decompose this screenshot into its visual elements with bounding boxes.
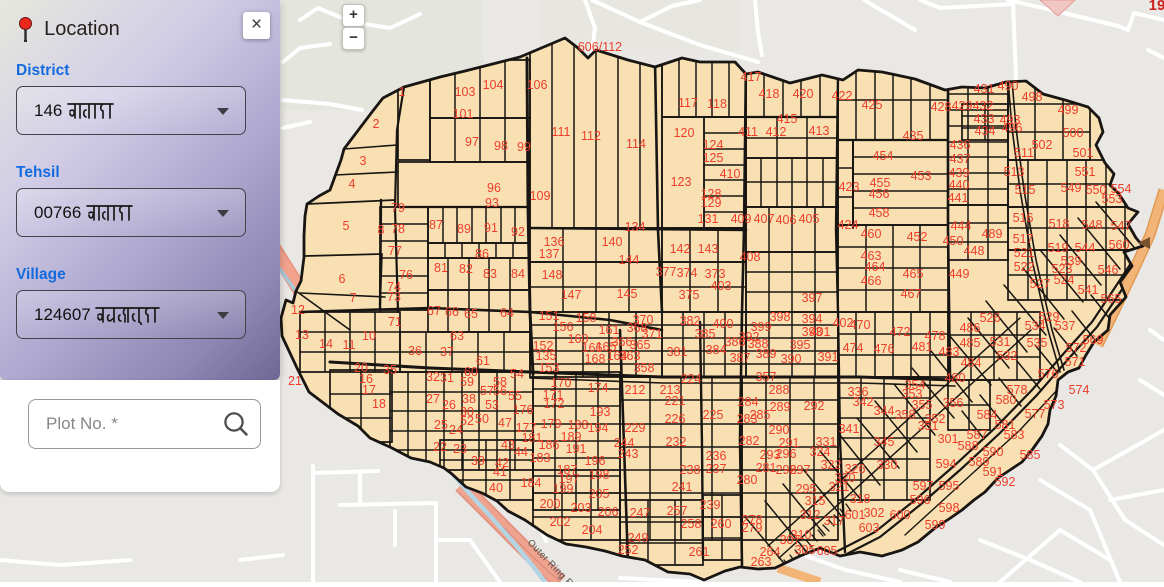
svg-text:279: 279 [742, 521, 763, 535]
svg-text:428: 428 [931, 100, 952, 114]
svg-text:82: 82 [459, 262, 473, 276]
svg-text:179: 179 [541, 417, 562, 431]
svg-text:39: 39 [471, 454, 485, 468]
svg-text:106: 106 [527, 78, 548, 92]
svg-text:32: 32 [426, 370, 440, 384]
svg-text:129: 129 [701, 196, 722, 210]
svg-text:385: 385 [695, 327, 716, 341]
svg-text:483: 483 [939, 345, 960, 359]
svg-text:544: 544 [1075, 241, 1096, 255]
svg-text:174: 174 [588, 381, 609, 395]
svg-text:356: 356 [943, 396, 964, 410]
svg-text:229: 229 [625, 421, 646, 435]
svg-text:382: 382 [680, 314, 701, 328]
svg-text:196: 196 [585, 454, 606, 468]
svg-text:511: 511 [1014, 146, 1034, 160]
svg-text:54: 54 [510, 367, 524, 381]
svg-text:412: 412 [766, 125, 787, 139]
svg-text:293: 293 [760, 448, 781, 462]
svg-text:501: 501 [1073, 146, 1094, 160]
svg-text:470: 470 [850, 318, 871, 332]
svg-text:577: 577 [1025, 407, 1046, 421]
svg-text:203: 203 [571, 501, 592, 515]
svg-text:541: 541 [1078, 283, 1099, 297]
svg-text:366: 366 [612, 335, 633, 349]
svg-text:532: 532 [997, 349, 1018, 363]
svg-text:408: 408 [740, 250, 761, 264]
svg-text:5: 5 [343, 219, 350, 233]
svg-text:148: 148 [542, 268, 563, 282]
svg-text:55: 55 [508, 389, 522, 403]
svg-text:202: 202 [550, 515, 571, 529]
svg-text:307: 307 [780, 533, 801, 547]
svg-text:6: 6 [339, 272, 346, 286]
svg-text:467: 467 [901, 287, 922, 301]
svg-text:377: 377 [656, 265, 677, 279]
svg-text:25: 25 [434, 418, 448, 432]
svg-text:397: 397 [802, 291, 823, 305]
svg-text:290: 290 [769, 423, 790, 437]
svg-text:387: 387 [730, 351, 751, 365]
svg-text:3: 3 [360, 154, 367, 168]
svg-text:581: 581 [995, 418, 1016, 432]
svg-text:548: 548 [1082, 218, 1103, 232]
svg-text:466: 466 [861, 274, 882, 288]
svg-text:1: 1 [399, 85, 406, 99]
svg-text:594: 594 [936, 457, 957, 471]
svg-text:206: 206 [598, 505, 619, 519]
svg-text:480: 480 [945, 371, 966, 385]
svg-text:450: 450 [943, 234, 964, 248]
svg-text:595: 595 [939, 479, 960, 493]
svg-text:537: 537 [1055, 319, 1076, 333]
svg-text:580: 580 [996, 393, 1017, 407]
svg-text:103: 103 [455, 85, 476, 99]
svg-text:605: 605 [817, 544, 838, 558]
svg-text:200: 200 [540, 497, 561, 511]
svg-text:83: 83 [483, 267, 497, 281]
svg-text:289: 289 [770, 400, 791, 414]
svg-text:101: 101 [453, 107, 474, 121]
svg-text:522: 522 [1014, 260, 1035, 274]
svg-text:322: 322 [821, 458, 842, 472]
svg-text:598: 598 [939, 501, 960, 515]
svg-text:476: 476 [874, 342, 895, 356]
svg-text:134: 134 [625, 220, 646, 234]
svg-text:181: 181 [522, 431, 543, 445]
svg-text:600: 600 [890, 508, 911, 522]
svg-text:599: 599 [925, 518, 946, 532]
svg-text:36: 36 [408, 344, 422, 358]
svg-text:395: 395 [790, 338, 811, 352]
svg-text:500: 500 [1063, 126, 1084, 140]
svg-text:405: 405 [799, 212, 820, 226]
svg-text:418: 418 [759, 87, 780, 101]
svg-text:452: 452 [907, 230, 928, 244]
svg-text:131: 131 [698, 212, 719, 226]
svg-text:453: 453 [911, 169, 932, 183]
svg-text:417: 417 [741, 70, 762, 84]
svg-text:358: 358 [895, 408, 916, 422]
svg-text:302: 302 [864, 506, 885, 520]
svg-text:37: 37 [440, 345, 454, 359]
svg-text:99: 99 [517, 140, 531, 154]
svg-text:285: 285 [750, 408, 771, 422]
svg-text:38: 38 [462, 392, 476, 406]
svg-text:145: 145 [617, 287, 638, 301]
svg-text:81: 81 [434, 261, 448, 275]
svg-text:117: 117 [678, 96, 698, 110]
svg-text:19: 19 [1149, 0, 1164, 14]
svg-text:312: 312 [800, 508, 821, 522]
svg-text:526: 526 [980, 311, 1001, 325]
svg-text:147: 147 [561, 288, 582, 302]
svg-text:371: 371 [642, 327, 663, 341]
svg-text:111: 111 [551, 125, 570, 139]
svg-text:143: 143 [698, 242, 719, 256]
svg-text:191: 191 [566, 442, 587, 456]
svg-text:118: 118 [707, 97, 727, 111]
svg-text:114: 114 [626, 137, 646, 151]
svg-text:247: 247 [630, 506, 651, 520]
svg-text:166: 166 [582, 341, 603, 355]
svg-text:22: 22 [433, 440, 447, 454]
svg-text:515: 515 [1015, 183, 1036, 197]
svg-text:137: 137 [539, 247, 560, 261]
svg-text:474: 474 [843, 341, 864, 355]
svg-text:224: 224 [681, 372, 702, 386]
svg-text:97: 97 [465, 135, 479, 149]
svg-text:8: 8 [378, 223, 385, 237]
svg-text:330: 330 [877, 458, 898, 472]
svg-text:58: 58 [493, 375, 507, 389]
svg-text:527: 527 [1030, 277, 1051, 291]
svg-text:11: 11 [343, 338, 356, 352]
svg-text:17: 17 [362, 383, 376, 397]
svg-text:14: 14 [319, 337, 333, 351]
svg-text:436: 436 [950, 138, 971, 152]
svg-text:92: 92 [511, 225, 525, 239]
svg-text:572: 572 [1066, 341, 1087, 355]
svg-text:226: 226 [665, 412, 686, 426]
svg-text:52: 52 [460, 414, 474, 428]
svg-text:472: 472 [890, 325, 911, 339]
svg-text:27: 27 [426, 392, 440, 406]
svg-text:502: 502 [1032, 138, 1053, 152]
svg-text:407: 407 [754, 212, 775, 226]
svg-text:93: 93 [485, 196, 499, 210]
svg-text:320: 320 [835, 471, 856, 485]
svg-text:425: 425 [862, 98, 883, 112]
svg-text:76: 76 [399, 268, 413, 282]
svg-text:375: 375 [679, 288, 700, 302]
svg-text:560: 560 [1109, 238, 1130, 252]
svg-text:588: 588 [958, 439, 979, 453]
svg-text:394: 394 [802, 312, 823, 326]
svg-text:64: 64 [500, 306, 514, 320]
svg-text:123: 123 [671, 175, 692, 189]
svg-text:478: 478 [925, 329, 946, 343]
svg-text:43: 43 [501, 438, 515, 452]
svg-text:237: 237 [706, 462, 727, 476]
svg-text:184: 184 [521, 476, 542, 490]
svg-text:546: 546 [1098, 263, 1119, 277]
svg-text:521: 521 [1014, 246, 1035, 260]
svg-text:66: 66 [445, 305, 459, 319]
svg-text:409: 409 [731, 212, 752, 226]
svg-text:315: 315 [805, 494, 826, 508]
svg-text:252: 252 [618, 543, 639, 557]
svg-text:87: 87 [429, 218, 443, 232]
svg-text:153: 153 [539, 361, 560, 375]
svg-text:232: 232 [666, 435, 687, 449]
svg-text:193: 193 [590, 405, 611, 419]
svg-text:606/112: 606/112 [578, 40, 622, 54]
svg-text:324: 324 [810, 445, 831, 459]
svg-text:31: 31 [440, 371, 454, 385]
svg-text:91: 91 [484, 221, 498, 235]
svg-text:499: 499 [1058, 103, 1079, 117]
svg-text:551: 551 [1075, 165, 1096, 179]
svg-text:592: 592 [995, 475, 1016, 489]
svg-text:406: 406 [776, 213, 797, 227]
svg-text:441: 441 [948, 191, 969, 205]
svg-text:12: 12 [291, 303, 305, 317]
svg-text:597: 597 [913, 479, 934, 493]
svg-text:109: 109 [530, 189, 551, 203]
svg-text:437: 437 [950, 152, 971, 166]
svg-text:574: 574 [1069, 383, 1090, 397]
svg-text:142: 142 [670, 242, 691, 256]
svg-text:381: 381 [667, 345, 688, 359]
svg-text:4: 4 [349, 177, 356, 191]
svg-text:156: 156 [553, 320, 574, 334]
svg-text:125: 125 [703, 151, 724, 165]
svg-text:318: 318 [850, 492, 871, 506]
svg-text:601: 601 [845, 508, 866, 522]
svg-text:57: 57 [480, 384, 494, 398]
svg-text:519: 519 [1048, 241, 1069, 255]
svg-text:238: 238 [680, 463, 701, 477]
svg-text:140: 140 [602, 235, 623, 249]
svg-text:411: 411 [738, 125, 758, 139]
svg-text:63: 63 [450, 329, 464, 343]
svg-text:78: 78 [391, 222, 405, 236]
svg-text:429: 429 [952, 99, 973, 113]
svg-text:358: 358 [634, 361, 655, 375]
svg-text:596: 596 [910, 493, 931, 507]
svg-text:205: 205 [589, 487, 610, 501]
svg-text:41: 41 [493, 465, 507, 479]
svg-text:317: 317 [824, 514, 845, 528]
svg-text:456: 456 [869, 187, 890, 201]
svg-text:144: 144 [619, 253, 640, 267]
svg-text:336: 336 [848, 385, 869, 399]
svg-text:176: 176 [513, 403, 534, 417]
svg-text:282: 282 [739, 434, 760, 448]
svg-text:7: 7 [350, 291, 357, 305]
svg-text:297: 297 [790, 463, 811, 477]
svg-text:448: 448 [964, 244, 985, 258]
svg-text:71: 71 [388, 315, 402, 329]
svg-text:460: 460 [861, 227, 882, 241]
svg-text:50: 50 [475, 412, 489, 426]
svg-text:77: 77 [388, 244, 402, 258]
svg-text:391: 391 [818, 350, 839, 364]
svg-text:263: 263 [751, 555, 772, 569]
svg-text:73: 73 [387, 290, 401, 304]
svg-text:352: 352 [925, 412, 946, 426]
svg-text:89: 89 [457, 222, 471, 236]
svg-text:517: 517 [1013, 232, 1034, 246]
svg-text:513: 513 [1004, 165, 1025, 179]
svg-text:35: 35 [383, 363, 397, 377]
svg-text:284: 284 [738, 395, 759, 409]
svg-text:531: 531 [990, 335, 1011, 349]
svg-text:98: 98 [494, 139, 508, 153]
svg-text:96: 96 [487, 181, 501, 195]
svg-text:84: 84 [511, 267, 525, 281]
svg-text:549: 549 [1061, 181, 1082, 195]
svg-text:104: 104 [483, 78, 504, 92]
svg-text:547: 547 [1111, 219, 1132, 233]
svg-text:86: 86 [475, 247, 489, 261]
svg-text:213: 213 [660, 383, 681, 397]
svg-text:225: 225 [703, 408, 724, 422]
svg-text:292: 292 [804, 399, 825, 413]
svg-text:236: 236 [706, 449, 727, 463]
svg-text:257: 257 [667, 504, 688, 518]
svg-text:423: 423 [839, 180, 860, 194]
svg-text:490: 490 [998, 79, 1019, 93]
svg-text:345: 345 [874, 435, 895, 449]
svg-text:61: 61 [476, 354, 490, 368]
svg-text:463: 463 [861, 249, 882, 263]
svg-text:398: 398 [770, 310, 791, 324]
svg-text:388: 388 [748, 337, 769, 351]
svg-text:440: 440 [949, 178, 970, 192]
svg-text:204: 204 [582, 523, 603, 537]
svg-text:516: 516 [1013, 211, 1034, 225]
svg-text:420: 420 [793, 87, 814, 101]
svg-text:400: 400 [713, 317, 734, 331]
svg-text:454: 454 [873, 149, 894, 163]
svg-text:260: 260 [711, 517, 732, 531]
svg-text:47: 47 [498, 416, 512, 430]
svg-text:484: 484 [961, 356, 982, 370]
svg-text:403: 403 [711, 279, 732, 293]
svg-text:23: 23 [453, 442, 467, 456]
svg-text:576: 576 [1038, 367, 1059, 381]
svg-text:489: 489 [982, 227, 1003, 241]
svg-text:458: 458 [869, 206, 890, 220]
svg-text:40: 40 [489, 481, 503, 495]
svg-text:53: 53 [485, 398, 499, 412]
svg-text:603: 603 [859, 521, 880, 535]
svg-text:44: 44 [514, 445, 528, 459]
svg-text:571: 571 [1065, 355, 1086, 369]
svg-text:26: 26 [442, 398, 456, 412]
svg-text:535: 535 [1027, 336, 1048, 350]
svg-text:524: 524 [1054, 273, 1075, 287]
svg-text:486: 486 [960, 321, 981, 335]
svg-text:120: 120 [674, 126, 695, 140]
svg-text:194: 194 [588, 421, 609, 435]
svg-text:158: 158 [576, 311, 597, 325]
svg-text:10: 10 [362, 329, 376, 343]
svg-text:344: 344 [874, 404, 895, 418]
svg-text:239: 239 [700, 498, 721, 512]
svg-text:212: 212 [625, 383, 646, 397]
svg-text:449: 449 [949, 267, 970, 281]
svg-text:2: 2 [373, 117, 380, 131]
svg-text:496: 496 [1002, 121, 1023, 135]
svg-text:281: 281 [756, 461, 777, 475]
svg-text:565: 565 [1101, 292, 1122, 306]
svg-text:60: 60 [464, 365, 478, 379]
svg-text:65: 65 [464, 307, 478, 321]
svg-text:67: 67 [427, 304, 441, 318]
svg-text:435: 435 [903, 129, 924, 143]
svg-text:410: 410 [720, 167, 741, 181]
svg-text:370: 370 [633, 313, 654, 327]
svg-text:21: 21 [288, 374, 302, 388]
svg-text:124: 124 [703, 138, 724, 152]
svg-text:431: 431 [974, 82, 995, 96]
svg-text:172: 172 [544, 397, 565, 411]
svg-text:341: 341 [839, 422, 860, 436]
svg-text:390: 390 [781, 352, 802, 366]
svg-text:485: 485 [960, 336, 981, 350]
svg-text:301: 301 [938, 432, 959, 446]
svg-text:432: 432 [973, 99, 994, 113]
svg-text:199: 199 [553, 482, 574, 496]
svg-text:444: 444 [951, 219, 972, 233]
svg-text:18: 18 [372, 397, 386, 411]
svg-text:357: 357 [756, 370, 777, 384]
svg-text:386: 386 [725, 335, 746, 349]
svg-text:258: 258 [681, 517, 702, 531]
svg-text:183: 183 [530, 451, 551, 465]
svg-text:374: 374 [677, 266, 698, 280]
svg-text:198: 198 [589, 468, 610, 482]
svg-text:280: 280 [737, 473, 758, 487]
svg-text:573: 573 [1044, 398, 1065, 412]
svg-text:434: 434 [975, 124, 996, 138]
svg-text:465: 465 [903, 267, 924, 281]
svg-text:261: 261 [689, 545, 710, 559]
svg-text:79: 79 [391, 201, 405, 215]
svg-text:498: 498 [1022, 90, 1043, 104]
svg-text:112: 112 [581, 129, 601, 143]
svg-text:553: 553 [1102, 192, 1123, 206]
svg-text:422: 422 [832, 89, 853, 103]
svg-text:415: 415 [777, 112, 798, 126]
svg-text:401: 401 [810, 325, 831, 339]
svg-text:241: 241 [672, 480, 693, 494]
svg-text:243: 243 [618, 447, 639, 461]
svg-text:413: 413 [809, 124, 830, 138]
svg-text:13: 13 [295, 328, 309, 342]
svg-text:518: 518 [1049, 217, 1070, 231]
svg-text:288: 288 [769, 383, 790, 397]
svg-text:424: 424 [838, 218, 859, 232]
svg-text:585: 585 [1020, 448, 1041, 462]
svg-text:384: 384 [706, 343, 727, 357]
